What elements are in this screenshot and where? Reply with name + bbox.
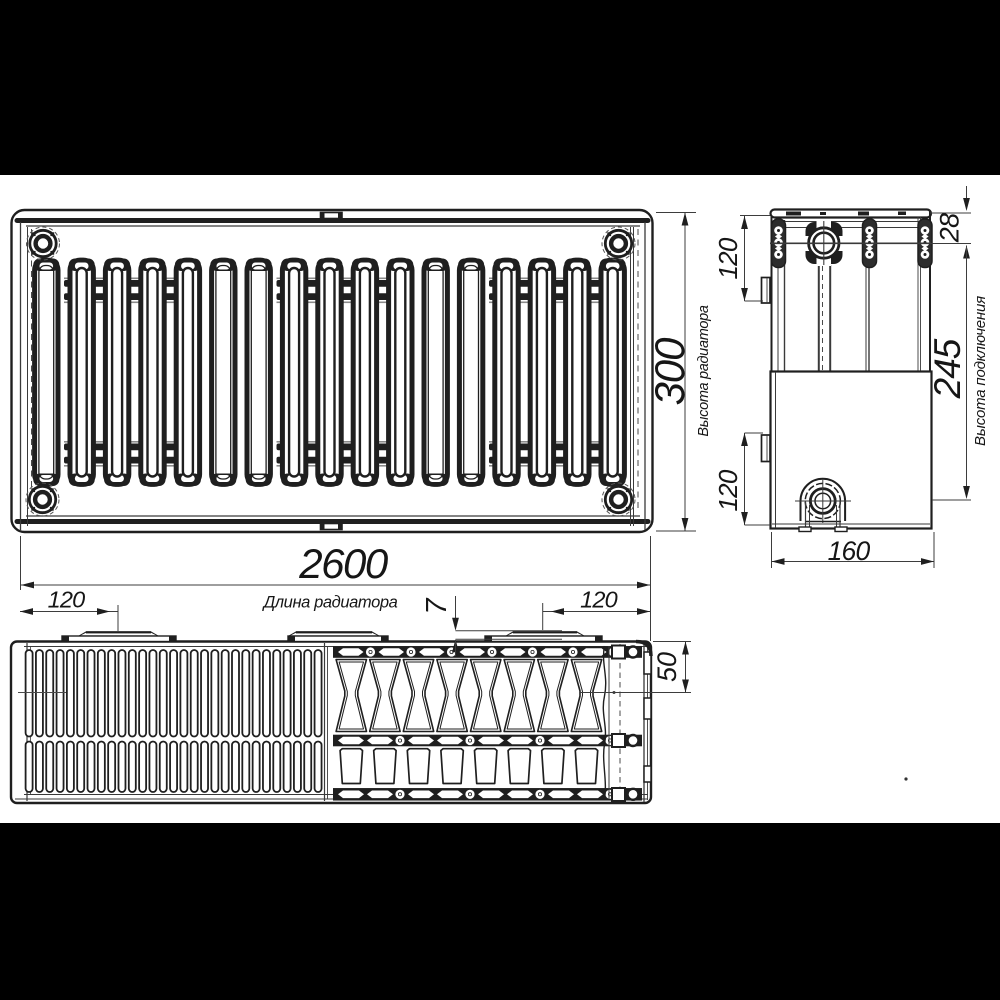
svg-text:Длина радиатора: Длина радиатора [262, 594, 398, 612]
svg-text:28: 28 [935, 213, 965, 243]
svg-text:120: 120 [580, 587, 618, 613]
svg-text:2600: 2600 [298, 540, 389, 587]
svg-text:50: 50 [652, 652, 682, 682]
svg-text:Высота радиатора: Высота радиатора [696, 305, 712, 436]
svg-text:245: 245 [927, 338, 968, 399]
svg-text:Высота подключения: Высота подключения [972, 296, 989, 446]
svg-text:7: 7 [421, 597, 453, 615]
svg-text:120: 120 [713, 469, 743, 511]
svg-text:120: 120 [713, 237, 743, 279]
svg-text:160: 160 [828, 536, 871, 566]
svg-text:300: 300 [646, 337, 693, 406]
svg-text:120: 120 [48, 587, 86, 613]
